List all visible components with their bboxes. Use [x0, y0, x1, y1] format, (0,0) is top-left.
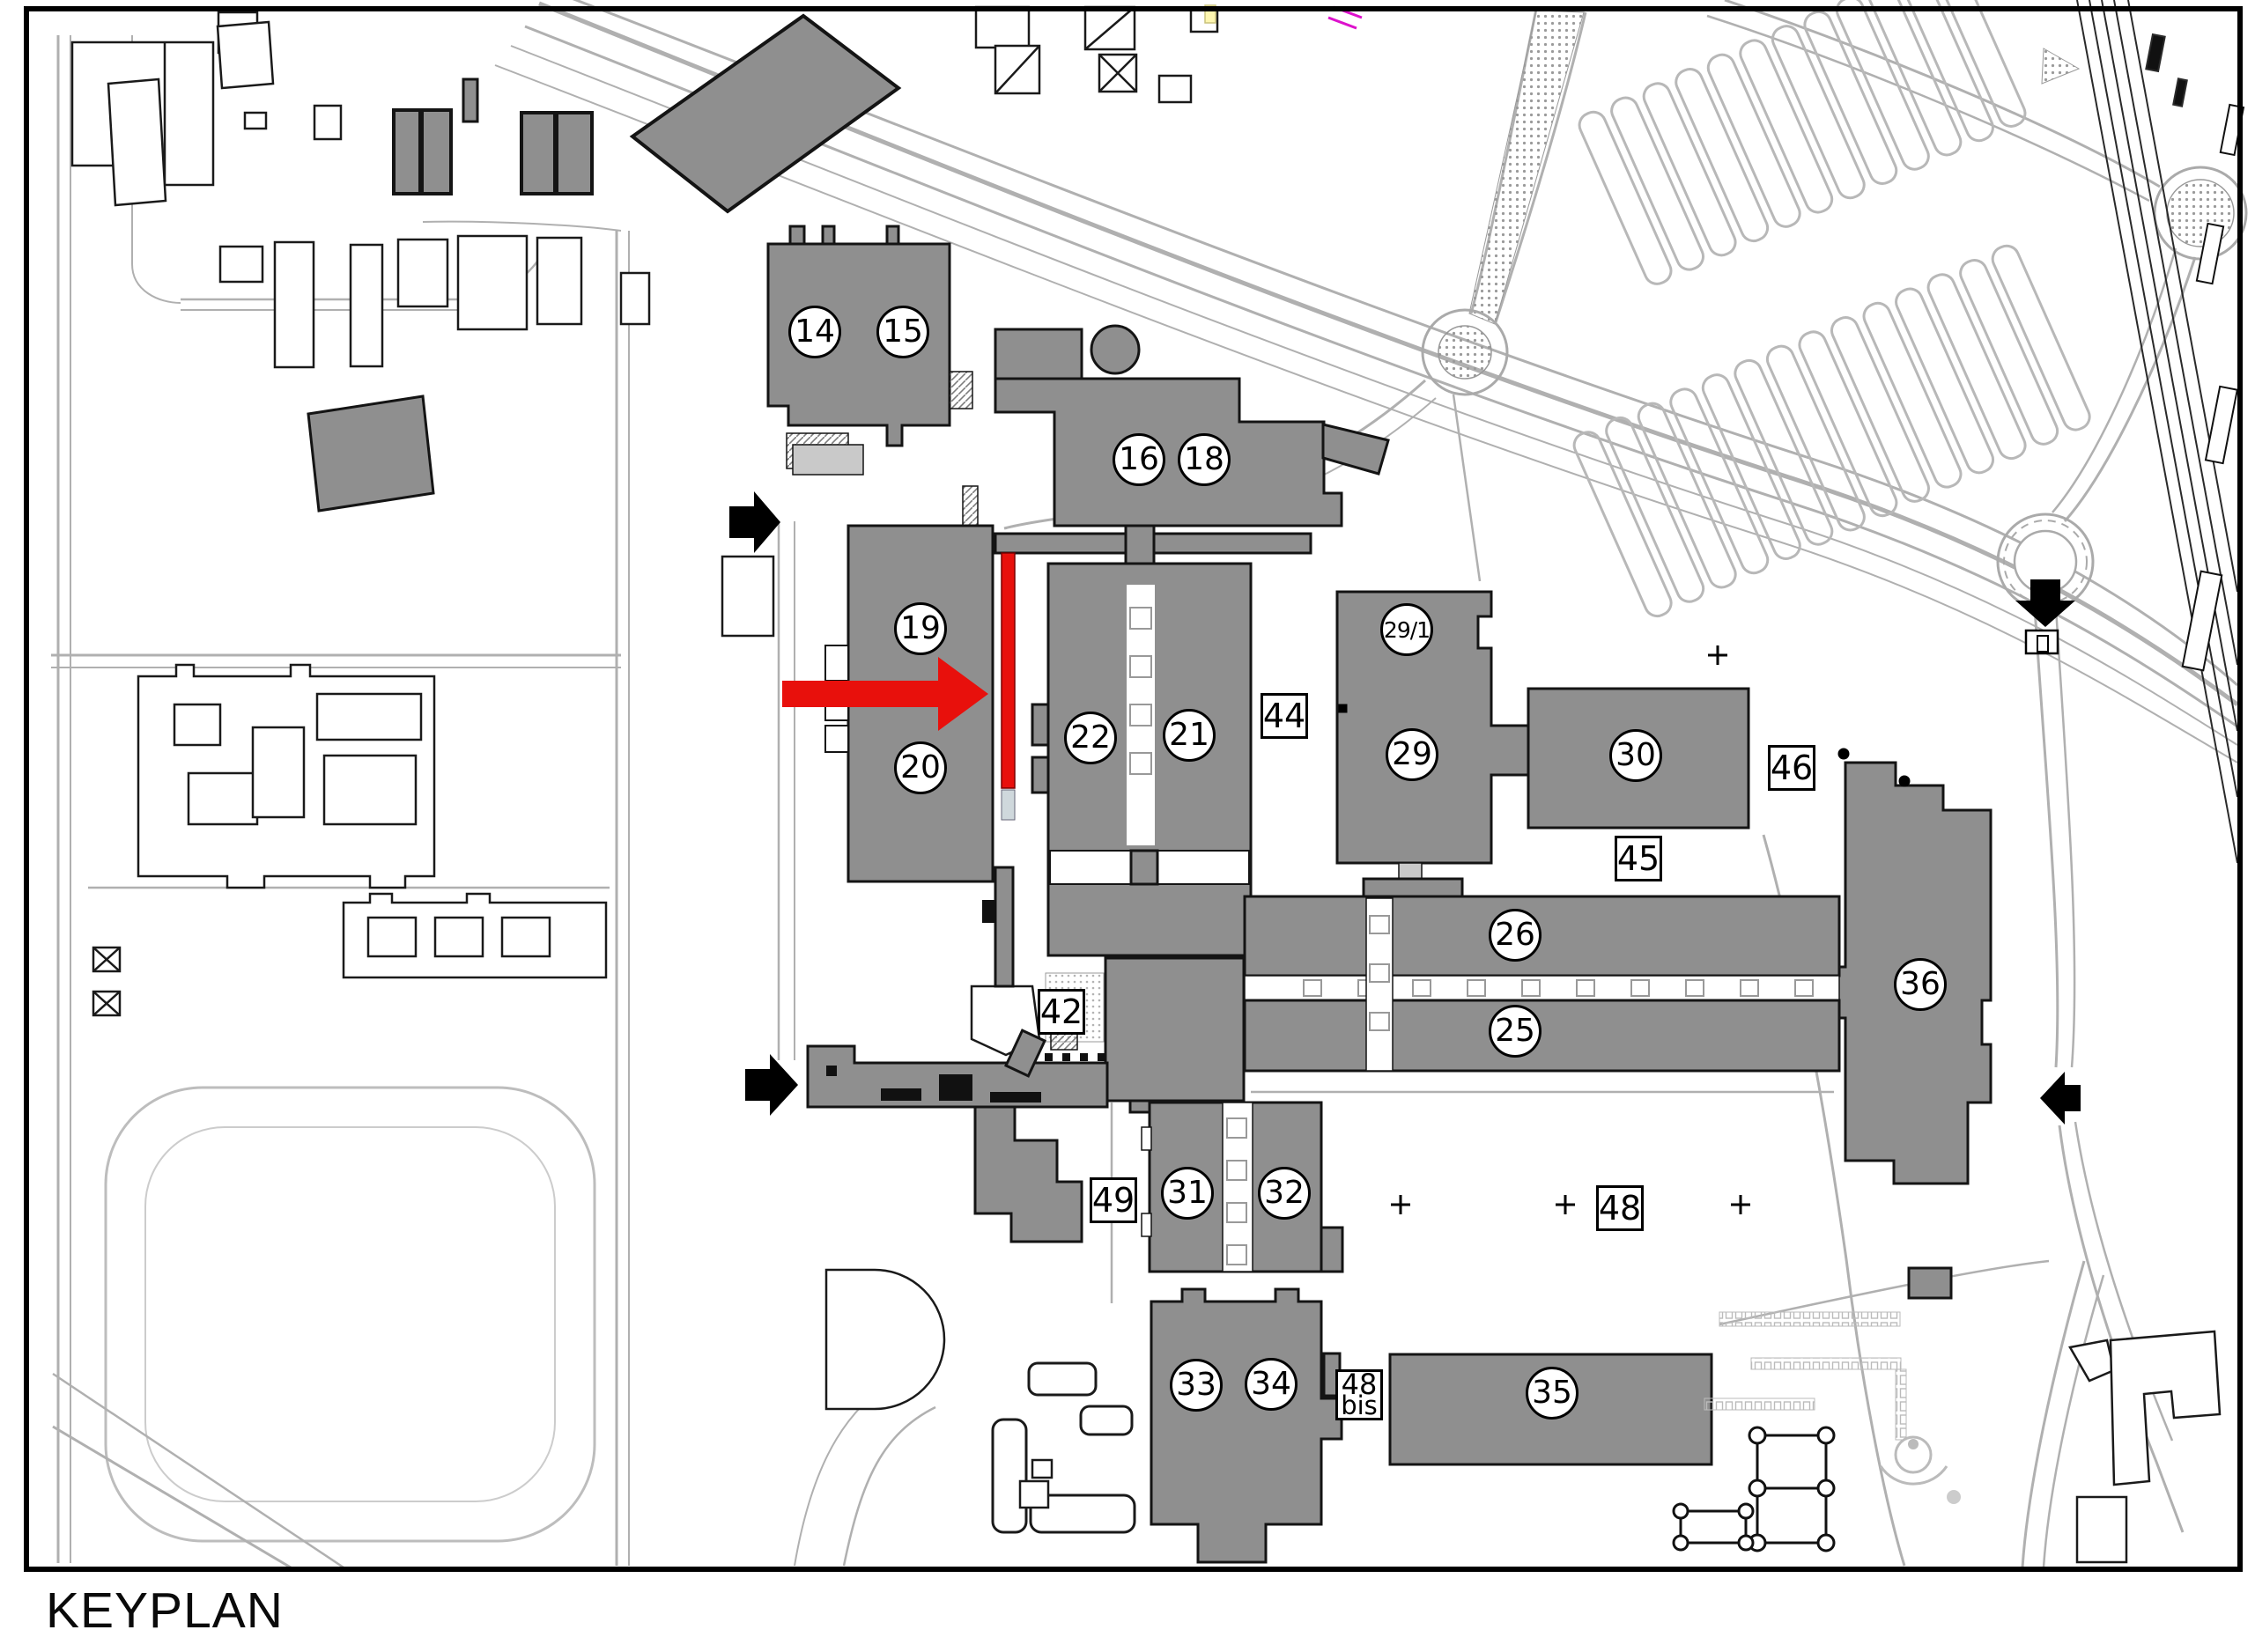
building-21-22 [1032, 564, 1251, 955]
building-label-18: 18 [1178, 433, 1231, 486]
entrance-arrow-east-icon [2040, 1072, 2081, 1125]
building-central-square [1105, 958, 1244, 1112]
area-label-45: 45 [1615, 836, 1662, 881]
building-label-25: 25 [1489, 1005, 1542, 1058]
corridor-link [995, 867, 1013, 986]
small-gray-building [1909, 1268, 1951, 1298]
gray-block-pair-west [394, 110, 592, 194]
building-label-26: 26 [1489, 909, 1542, 962]
highlighted-building-strip [1002, 553, 1015, 788]
area-label-48: 48 [1596, 1185, 1644, 1231]
building-label-21: 21 [1163, 709, 1216, 762]
building-label-33: 33 [1170, 1359, 1223, 1412]
parking-lot-upper [1576, 0, 2029, 288]
area-label-42: 42 [1038, 989, 1085, 1035]
building-label-32: 32 [1258, 1167, 1311, 1220]
building-label-15: 15 [876, 306, 929, 358]
garden-area [1674, 1312, 1961, 1551]
building-26-25 [1245, 896, 1839, 1071]
entrance-arrow-northwest-icon [729, 491, 780, 553]
building-label-31: 31 [1161, 1167, 1214, 1220]
tilted-gray-building-2 [308, 396, 433, 511]
building-label-14: 14 [788, 306, 841, 358]
entrance-arrow-west-icon [745, 1054, 798, 1116]
building-label-34: 34 [1245, 1358, 1298, 1411]
building-label-30: 30 [1609, 729, 1662, 782]
area-label-48bis: 48 bis [1335, 1369, 1383, 1420]
building-label-29-1: 29/1 [1380, 603, 1433, 656]
building-label-29: 29 [1386, 728, 1438, 781]
building-label-16: 16 [1113, 433, 1165, 486]
site-map-graphics [0, 0, 2255, 1652]
building-label-20: 20 [894, 741, 947, 794]
area-label-46: 46 [1768, 745, 1815, 791]
building-label-36: 36 [1894, 958, 1947, 1011]
roundabouts [1423, 11, 2246, 653]
gray-sliver [463, 79, 477, 122]
building-label-22: 22 [1064, 712, 1117, 764]
building-33-34 [1151, 1289, 1342, 1562]
building-label-19: 19 [894, 602, 947, 655]
area-label-44: 44 [1261, 693, 1308, 739]
building-label-35: 35 [1526, 1367, 1578, 1420]
page-title: KEYPLAN [46, 1582, 284, 1640]
keyplan-page: 14 15 16 18 19 20 22 21 29/1 29 30 36 26… [0, 0, 2255, 1652]
area-label-49: 49 [1090, 1177, 1137, 1223]
